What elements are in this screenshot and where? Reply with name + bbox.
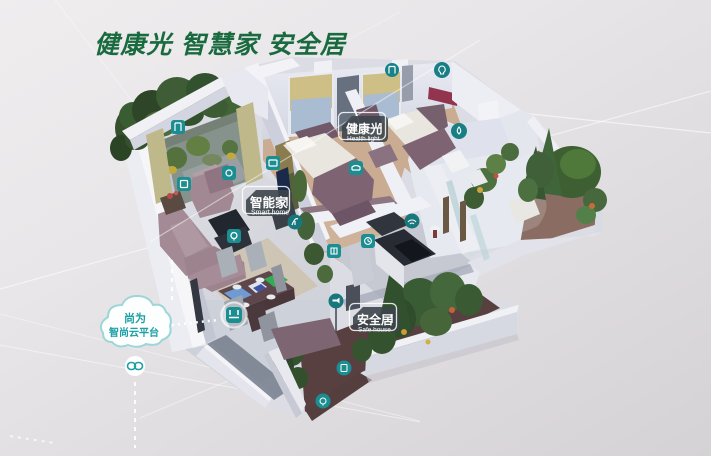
svg-text:Safe house: Safe house [358, 327, 391, 334]
svg-text:尚为: 尚为 [124, 311, 146, 325]
svg-text:智能家: 智能家 [249, 195, 288, 210]
svg-text:Smart home: Smart home [251, 210, 289, 217]
svg-text:健康光 智慧家 安全居: 健康光 智慧家 安全居 [94, 31, 348, 59]
svg-text:Health light: Health light [347, 136, 380, 143]
svg-text:健康光: 健康光 [346, 121, 382, 136]
svg-text:安全居: 安全居 [357, 312, 393, 327]
svg-text:智尚云平台: 智尚云平台 [109, 326, 159, 339]
